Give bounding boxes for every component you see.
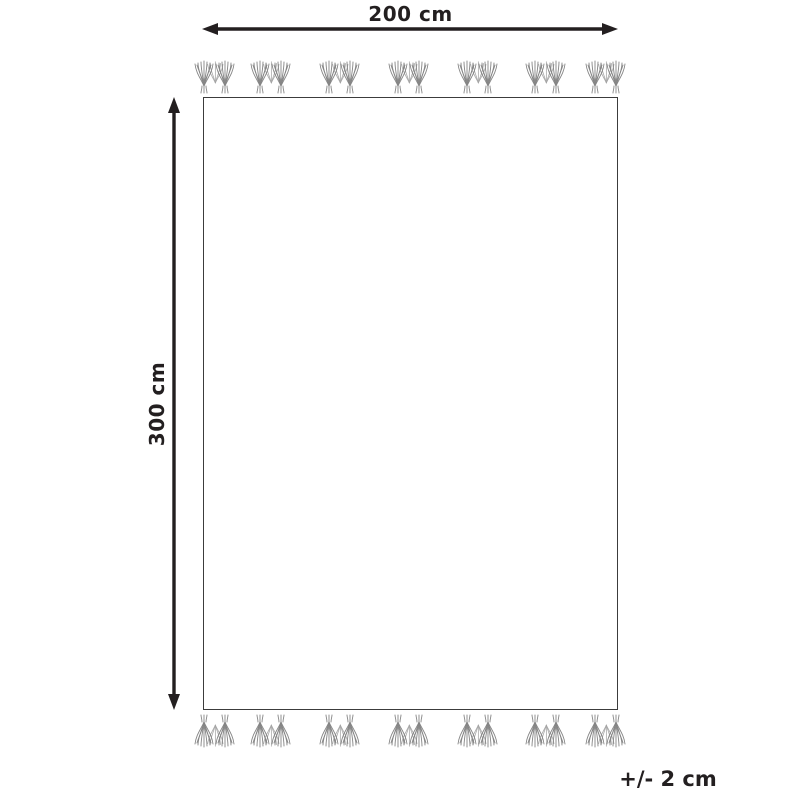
- tassel-group-icon: [193, 711, 237, 749]
- tassel-group: [584, 711, 628, 749]
- tassel-group-icon: [318, 711, 362, 749]
- tassel-group: [584, 59, 628, 97]
- width-arrow-icon: [202, 22, 618, 36]
- tassel-group: [524, 711, 568, 749]
- tassel-group-icon: [193, 59, 237, 97]
- tassel-group-icon: [387, 59, 431, 97]
- tassel-group-icon: [524, 59, 568, 97]
- tassel-group-icon: [387, 711, 431, 749]
- tassel-group: [318, 711, 362, 749]
- tolerance-label: +/- 2 cm: [593, 767, 743, 791]
- tassel-group: [387, 711, 431, 749]
- tassel-group: [193, 711, 237, 749]
- tassel-group: [456, 711, 500, 749]
- tassel-group: [249, 59, 293, 97]
- tassel-group-icon: [249, 711, 293, 749]
- rug-dimension-diagram: 200 cm 300 cm: [0, 0, 800, 800]
- tassel-group: [456, 59, 500, 97]
- tassels-bottom: [0, 711, 800, 751]
- tassel-group-icon: [249, 59, 293, 97]
- tassel-group: [524, 59, 568, 97]
- tassel-group: [318, 59, 362, 97]
- tassel-group: [249, 711, 293, 749]
- tassel-group: [387, 59, 431, 97]
- tassel-group-icon: [456, 59, 500, 97]
- tassel-group-icon: [524, 711, 568, 749]
- height-arrow-icon: [167, 97, 181, 710]
- tassel-group-icon: [456, 711, 500, 749]
- rug-outline: [203, 97, 618, 710]
- tassel-group: [193, 59, 237, 97]
- tassel-group-icon: [318, 59, 362, 97]
- tassel-group-icon: [584, 59, 628, 97]
- tassel-group-icon: [584, 711, 628, 749]
- tassels-top: [0, 59, 800, 97]
